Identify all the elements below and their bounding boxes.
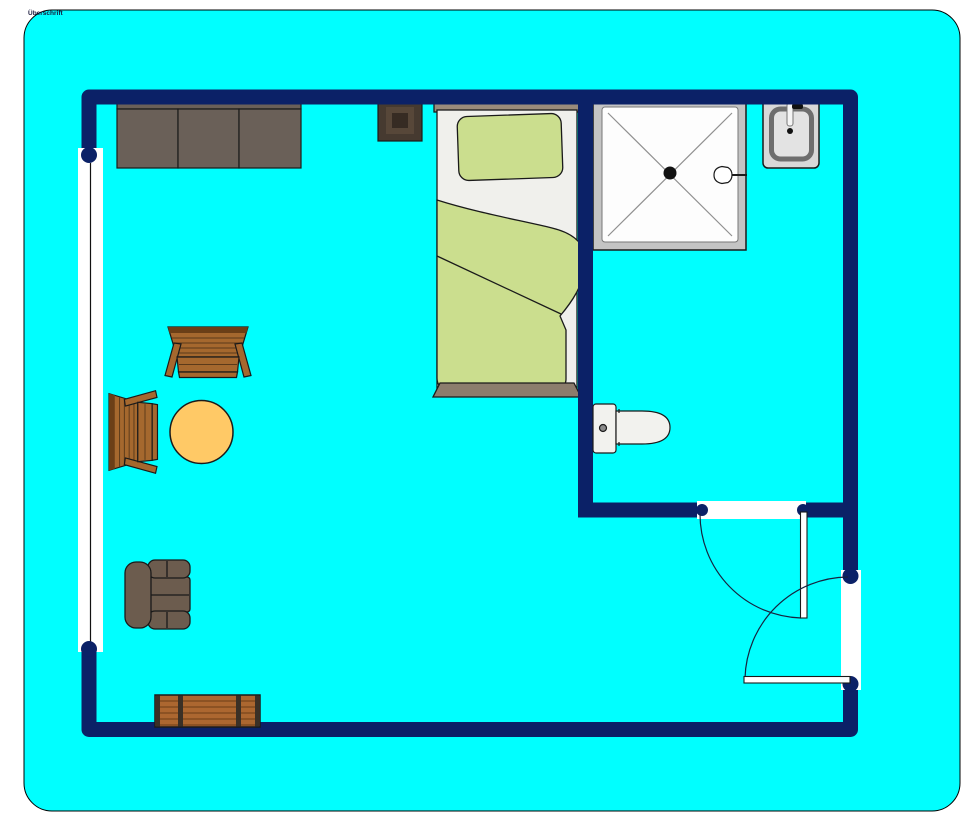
sofa-seat — [178, 109, 239, 168]
night-table-center — [392, 113, 408, 128]
window-icon[interactable] — [78, 147, 103, 657]
bed-footboard — [433, 383, 581, 397]
toilet-flush-button — [600, 425, 607, 432]
chest-body — [155, 695, 260, 727]
armchair-backrest — [125, 562, 151, 628]
wall-end-cap — [81, 147, 97, 163]
chair-icon-left[interactable] — [109, 391, 157, 474]
round-table-icon[interactable] — [170, 401, 233, 464]
sofa-seat — [117, 109, 178, 168]
faucet-lever — [792, 104, 803, 109]
floor-plan-canvas — [0, 0, 973, 819]
sink-icon[interactable] — [763, 99, 819, 168]
door-leaf — [744, 677, 850, 684]
chest-icon[interactable] — [155, 695, 260, 727]
shower-icon[interactable] — [593, 98, 747, 250]
door-hinge-dot — [696, 504, 708, 516]
page-title: Überschrift — [28, 11, 63, 18]
armchair-armrest — [148, 560, 190, 578]
sofa-icon[interactable] — [117, 99, 301, 168]
door-opening — [697, 501, 806, 519]
wall-end-cap — [81, 641, 97, 657]
bed-icon[interactable] — [433, 98, 586, 397]
door-leaf — [801, 512, 808, 618]
night-table-icon[interactable] — [378, 99, 422, 141]
armchair-icon[interactable] — [125, 560, 190, 629]
door-hinge-dot — [843, 568, 859, 584]
toilet-bowl — [616, 411, 670, 444]
sofa-seat — [239, 109, 301, 168]
door-opening — [841, 570, 861, 690]
chair-icon-top[interactable] — [165, 327, 251, 378]
shower-head-icon — [714, 167, 732, 184]
armchair-armrest — [148, 611, 190, 629]
bed-pillow — [457, 113, 563, 181]
shower-drain — [664, 167, 677, 180]
sink-drain — [787, 128, 793, 134]
